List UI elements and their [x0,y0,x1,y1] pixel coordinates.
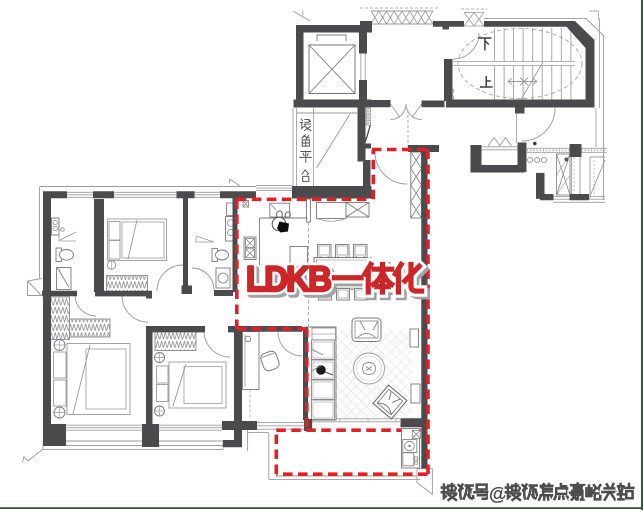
svg-text:LDKB: LDKB [246,260,331,299]
